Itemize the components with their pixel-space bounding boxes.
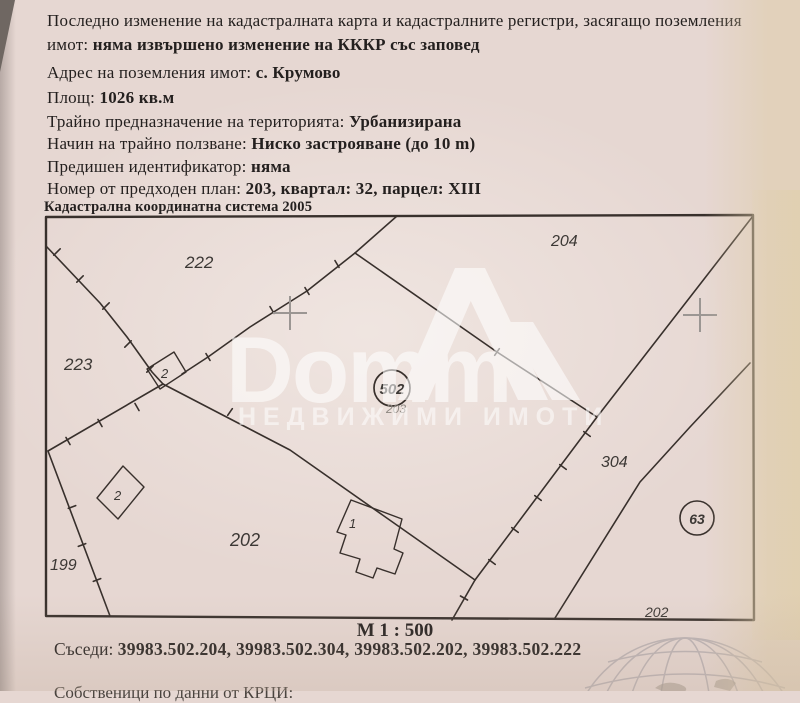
owners-line-cutoff: Собственици по данни от КРЦИ: (54, 683, 293, 703)
watermark: Domm НЕДВИЖИМИ ИМОТИ (0, 0, 800, 691)
neighbors-line: Съседи: 39983.502.204, 39983.502.304, 39… (54, 639, 581, 660)
document-scan: { "header": { "line1": "Последно изменен… (0, 0, 800, 691)
watermark-tagline: НЕДВИЖИМИ ИМОТИ (238, 403, 609, 431)
